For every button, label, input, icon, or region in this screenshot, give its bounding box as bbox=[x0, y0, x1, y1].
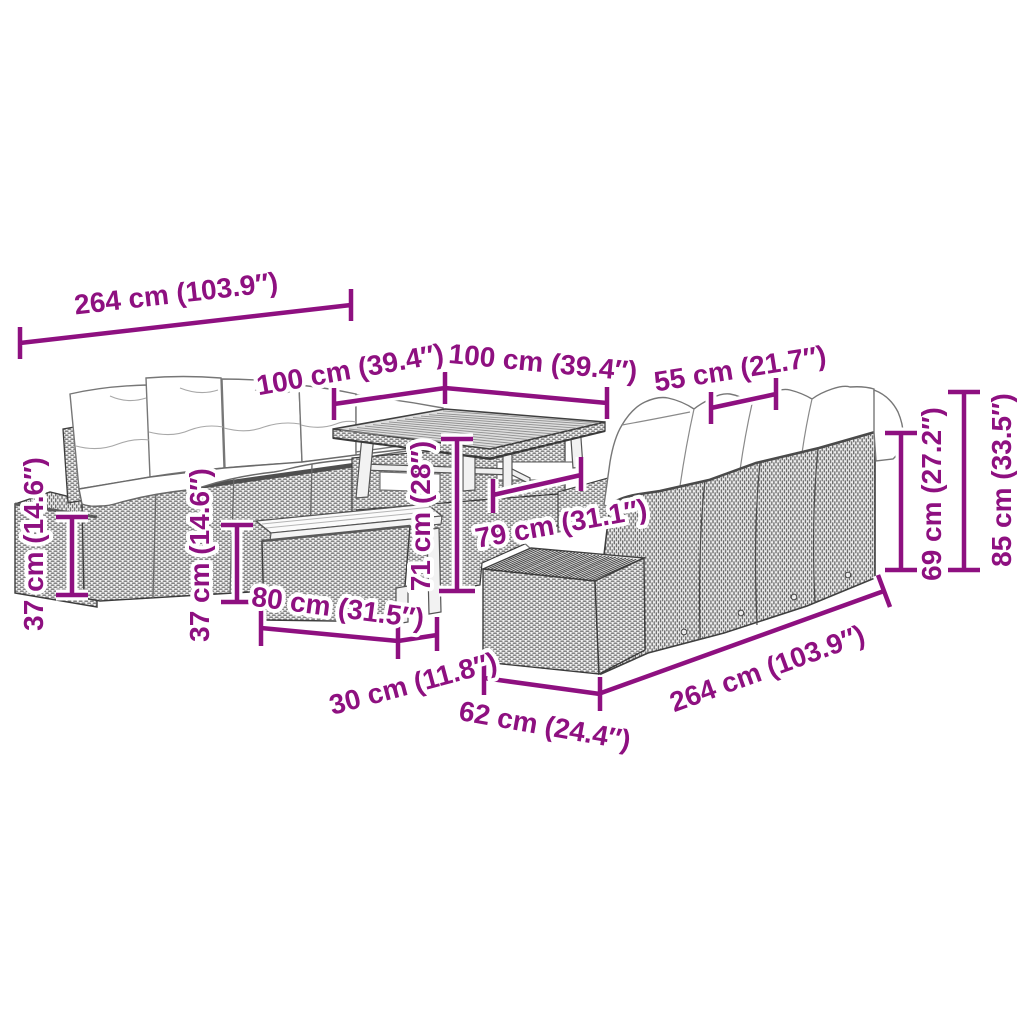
svg-text:71 cm (28″): 71 cm (28″) bbox=[405, 441, 436, 591]
svg-text:69 cm (27.2″): 69 cm (27.2″) bbox=[916, 407, 947, 581]
svg-text:37 cm (14.6″): 37 cm (14.6″) bbox=[18, 457, 49, 631]
svg-text:37 cm (14.6″): 37 cm (14.6″) bbox=[184, 468, 215, 642]
svg-text:85 cm (33.5″): 85 cm (33.5″) bbox=[986, 393, 1017, 567]
